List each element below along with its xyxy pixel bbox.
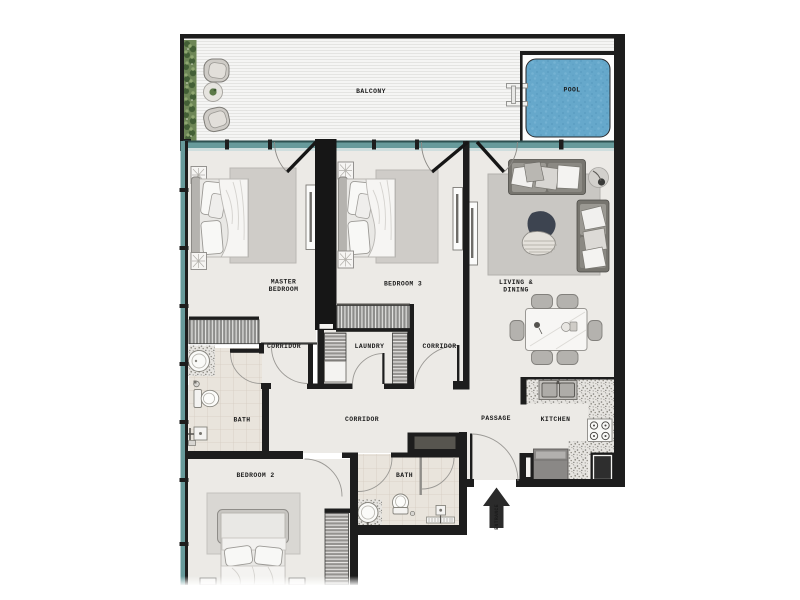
svg-text:LIVING &: LIVING & [499,279,533,286]
svg-text:KITCHEN: KITCHEN [541,416,571,423]
svg-text:BATH: BATH [396,472,413,479]
svg-text:CORRIDOR: CORRIDOR [345,416,379,423]
svg-text:DINING: DINING [503,287,528,294]
svg-text:BEDROOM 2: BEDROOM 2 [236,472,274,479]
svg-text:BATH: BATH [234,417,251,424]
svg-text:MASTER: MASTER [271,279,296,286]
svg-text:BALCONY: BALCONY [356,88,386,95]
svg-text:PASSAGE: PASSAGE [481,415,511,422]
svg-text:LAUNDRY: LAUNDRY [355,343,385,350]
svg-text:BEDROOM 3: BEDROOM 3 [384,281,422,288]
svg-text:ENTRANCE: ENTRANCE [494,504,500,530]
svg-text:CORRIDOR: CORRIDOR [267,343,301,350]
svg-text:CORRIDOR: CORRIDOR [423,343,457,350]
svg-text:POOL: POOL [564,87,581,94]
svg-text:BEDROOM: BEDROOM [269,286,299,293]
